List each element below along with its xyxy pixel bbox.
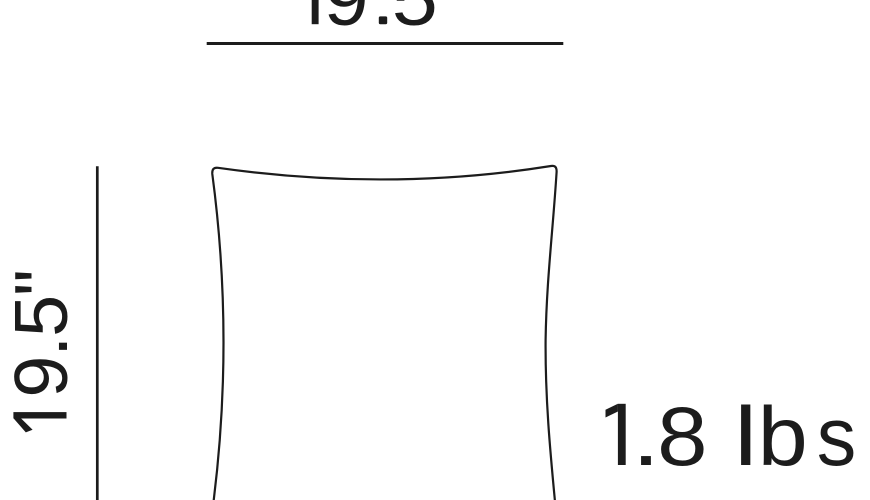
svg-text:9.5": 9.5" (0, 270, 83, 397)
svg-text:8: 8 (657, 389, 707, 483)
svg-text:s: s (817, 389, 857, 483)
svg-text:5: 5 (392, 0, 438, 42)
svg-text:9: 9 (324, 0, 369, 42)
svg-text:.: . (632, 389, 661, 483)
svg-text:b: b (758, 389, 808, 483)
svg-text:l: l (734, 389, 757, 483)
